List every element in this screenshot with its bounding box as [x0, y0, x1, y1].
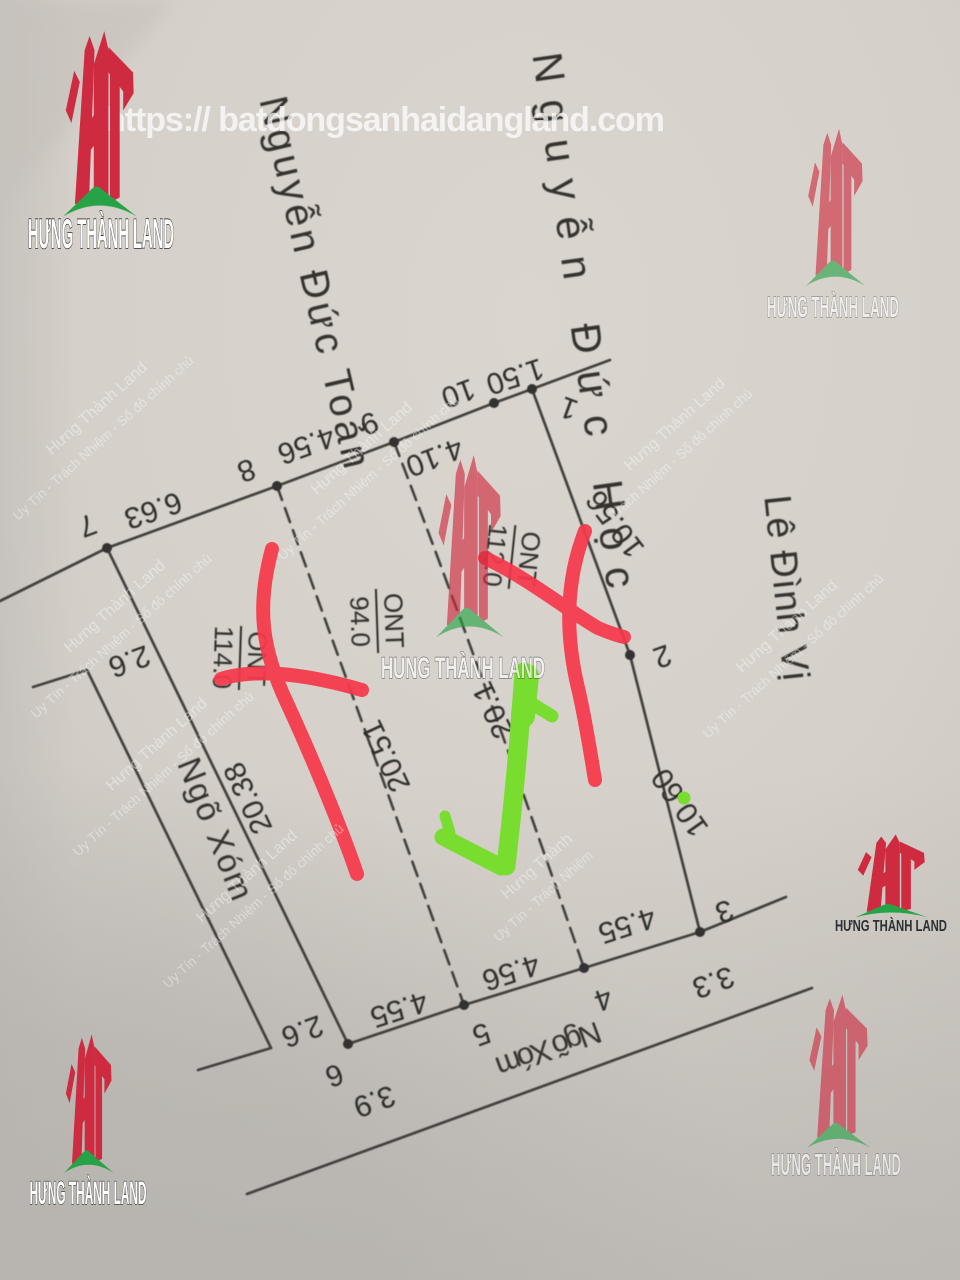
svg-text:HƯNG THÀNH LAND: HƯNG THÀNH LAND: [28, 210, 174, 257]
svg-text:94.0: 94.0: [344, 596, 376, 648]
svg-text:HƯNG THÀNH LAND: HƯNG THÀNH LAND: [30, 1175, 147, 1211]
svg-text:HƯNG THÀNH LAND: HƯNG THÀNH LAND: [767, 290, 899, 324]
svg-text:HƯNG THÀNH LAND: HƯNG THÀNH LAND: [771, 1147, 901, 1182]
svg-text:HUNG THÀNH LAND: HUNG THÀNH LAND: [381, 651, 545, 685]
svg-text:https:// batdongsanhaidangland: https:// batdongsanhaidangland.com: [105, 101, 665, 139]
svg-text:ONT: ONT: [378, 592, 410, 648]
svg-text:HƯNG THÀNH LAND: HƯNG THÀNH LAND: [835, 916, 947, 935]
